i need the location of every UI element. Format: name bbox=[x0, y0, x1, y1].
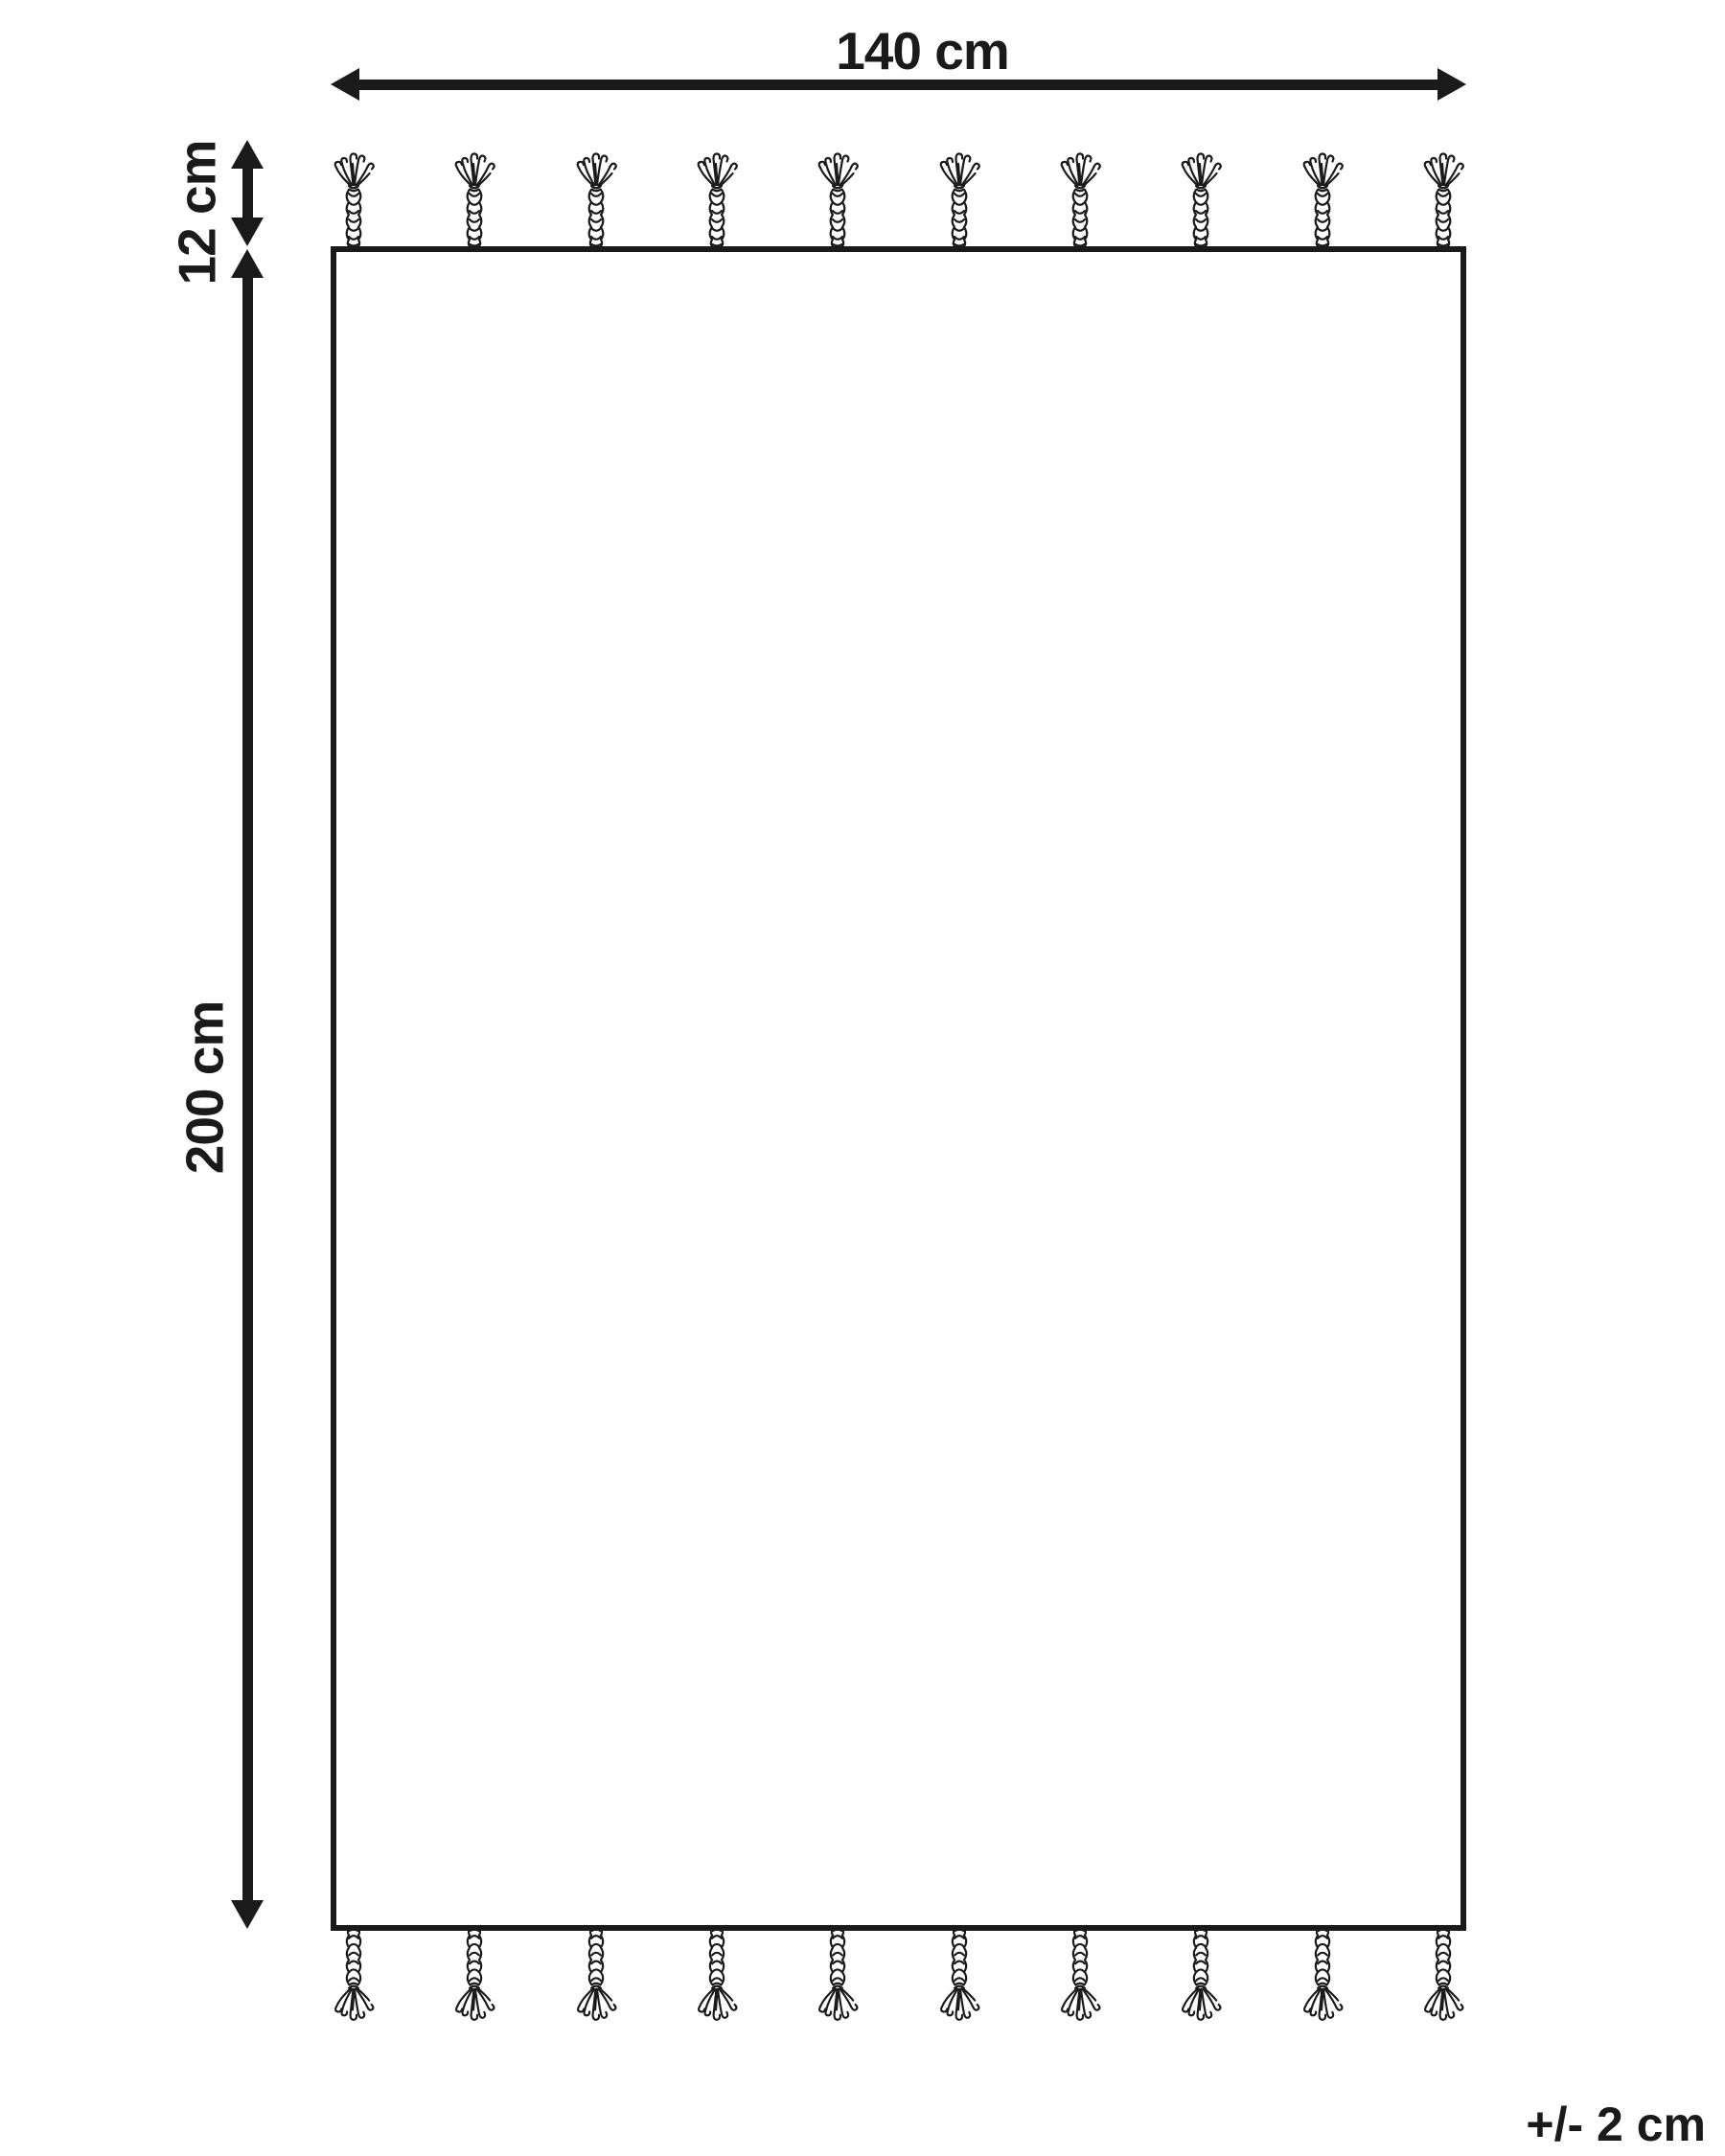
tassel-icon bbox=[331, 141, 377, 246]
tolerance-label: +/- 2 cm bbox=[1526, 2100, 1706, 2148]
arrowhead-left-icon bbox=[331, 68, 359, 101]
height-dimension-label: 200 cm bbox=[179, 1001, 232, 1175]
tassel-icon bbox=[1420, 141, 1466, 246]
tassel-length-dimension-arrow bbox=[231, 140, 264, 246]
tassel-icon bbox=[815, 141, 861, 246]
arrowhead-down-icon bbox=[231, 1900, 264, 1929]
tassel-icon bbox=[451, 1929, 497, 2032]
arrowhead-up-icon bbox=[231, 249, 264, 278]
tassel-icon bbox=[573, 1929, 619, 2032]
tassel-icon bbox=[331, 1929, 377, 2032]
tassel-icon bbox=[1299, 1929, 1345, 2032]
tassel-icon bbox=[1057, 1929, 1103, 2032]
tassel-icon bbox=[815, 1929, 861, 2032]
tassel-icon bbox=[694, 1929, 740, 2032]
tassel-icon bbox=[936, 1929, 982, 2032]
tassel-icon bbox=[1057, 141, 1103, 246]
arrow-shaft bbox=[242, 169, 253, 218]
arrowhead-right-icon bbox=[1437, 68, 1466, 101]
rug-outline bbox=[331, 246, 1466, 1931]
tassel-icon bbox=[1299, 141, 1345, 246]
arrow-shaft bbox=[359, 80, 1437, 90]
top-tassel-row bbox=[331, 141, 1466, 247]
arrowhead-down-icon bbox=[231, 218, 264, 246]
tassel-icon bbox=[451, 141, 497, 246]
tassel-icon bbox=[1420, 1929, 1466, 2032]
tassel-icon bbox=[1178, 141, 1224, 246]
arrowhead-up-icon bbox=[231, 140, 264, 169]
height-dimension-arrow bbox=[231, 249, 264, 1929]
tassel-icon bbox=[694, 141, 740, 246]
rug-dimension-diagram: 140 cm 12 cm 200 cm bbox=[0, 0, 1725, 2156]
bottom-tassel-row bbox=[331, 1929, 1466, 2032]
tassel-icon bbox=[1178, 1929, 1224, 2032]
width-dimension-arrow bbox=[331, 68, 1466, 101]
tassel-icon bbox=[936, 141, 982, 246]
arrow-shaft bbox=[242, 278, 253, 1900]
tassel-icon bbox=[573, 141, 619, 246]
tassel-length-dimension-label: 12 cm bbox=[172, 141, 224, 286]
